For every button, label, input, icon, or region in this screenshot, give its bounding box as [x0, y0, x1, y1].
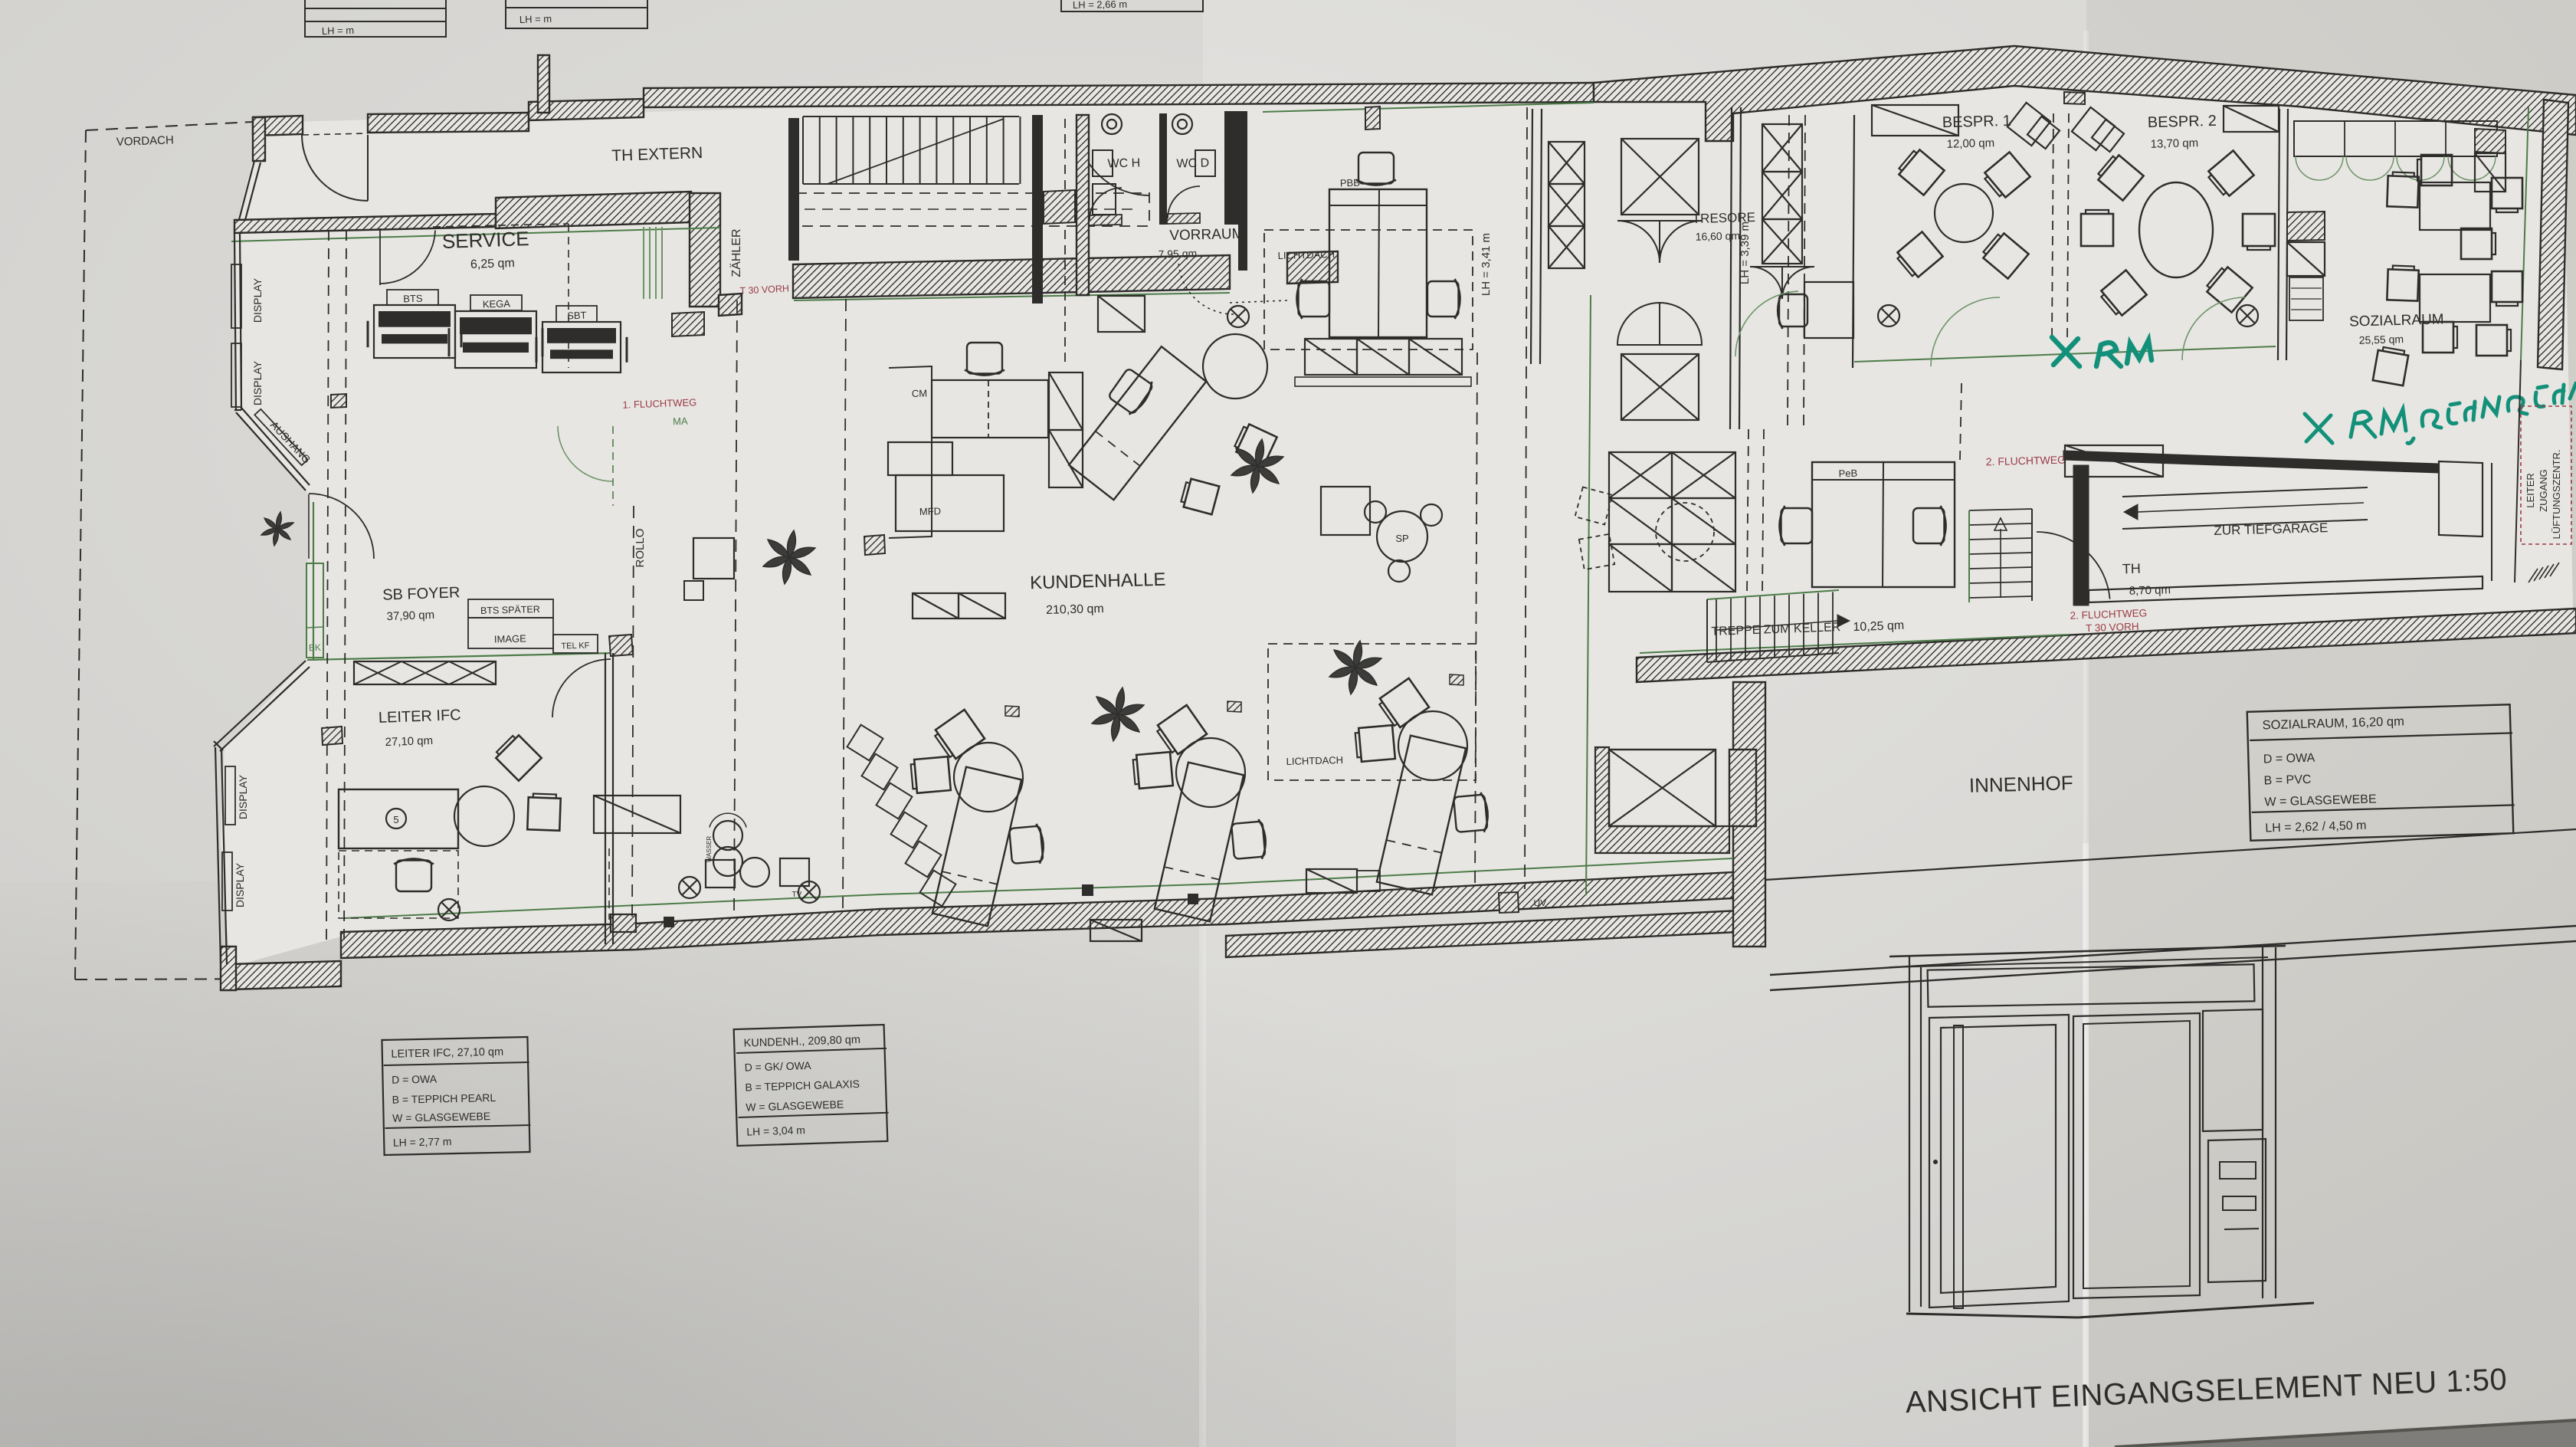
svg-text:SERVICE: SERVICE	[441, 227, 529, 253]
svg-text:7,95 qm: 7,95 qm	[1158, 247, 1197, 260]
svg-text:B = PVC: B = PVC	[2263, 773, 2311, 788]
svg-text:WC D: WC D	[1176, 156, 1209, 170]
svg-text:LH = 3,04 m: LH = 3,04 m	[746, 1124, 805, 1137]
svg-text:DISPLAY: DISPLAY	[237, 774, 249, 819]
svg-text:W = GLASGEWEBE: W = GLASGEWEBE	[392, 1110, 490, 1124]
svg-text:WASSER: WASSER	[706, 836, 713, 863]
svg-text:SB FOYER: SB FOYER	[382, 584, 460, 604]
svg-text:TH EXTERN: TH EXTERN	[611, 144, 703, 165]
svg-text:LEITER: LEITER	[2525, 473, 2536, 508]
svg-text:2. FLUCHTWEG: 2. FLUCHTWEG	[1986, 454, 2066, 468]
svg-text:5: 5	[393, 814, 398, 825]
svg-text:LICHTDACH: LICHTDACH	[1277, 248, 1335, 261]
svg-text:MA: MA	[673, 415, 688, 428]
svg-text:IMAGE: IMAGE	[494, 632, 527, 645]
svg-text:LH = 3,39 m: LH = 3,39 m	[1739, 221, 1752, 284]
svg-text:LÜFTUNGSZENTR.: LÜFTUNGSZENTR.	[2551, 450, 2562, 540]
svg-text:ZUGANG: ZUGANG	[2538, 469, 2549, 512]
svg-text:KUNDENHALLE: KUNDENHALLE	[1030, 569, 1166, 594]
svg-text:BTS: BTS	[403, 293, 423, 305]
svg-text:SBT: SBT	[567, 310, 587, 322]
svg-text:UV: UV	[1533, 897, 1546, 908]
svg-text:PeB: PeB	[1838, 468, 1857, 480]
svg-text:DISPLAY: DISPLAY	[251, 277, 264, 323]
svg-text:DISPLAY: DISPLAY	[234, 862, 246, 907]
svg-text:TV: TV	[791, 891, 801, 899]
svg-text:CM: CM	[912, 387, 928, 399]
svg-text:37,90 qm: 37,90 qm	[386, 609, 434, 623]
svg-text:B = TEPPICH PEARL: B = TEPPICH PEARL	[392, 1091, 497, 1106]
svg-text:25,55 qm: 25,55 qm	[2358, 333, 2404, 346]
svg-text:T 30 VORH: T 30 VORH	[2086, 621, 2139, 634]
svg-text:KEGA: KEGA	[483, 298, 511, 310]
svg-text:PBB: PBB	[1340, 177, 1360, 189]
svg-text:LICHTDACH: LICHTDACH	[1286, 754, 1343, 767]
svg-text:ZÄHLER: ZÄHLER	[729, 228, 743, 277]
svg-text:MFD: MFD	[919, 505, 942, 517]
svg-text:16,60 qm: 16,60 qm	[1695, 229, 1740, 243]
svg-text:VORRAUM: VORRAUM	[1169, 226, 1244, 244]
svg-text:LH = 2,77 m: LH = 2,77 m	[393, 1135, 452, 1149]
svg-text:LH = m: LH = m	[519, 13, 552, 25]
svg-text:BK: BK	[309, 642, 321, 653]
svg-text:D = GK/ OWA: D = GK/ OWA	[744, 1059, 811, 1074]
svg-text:INNENHOF: INNENHOF	[1969, 771, 2074, 797]
svg-text:WC H: WC H	[1107, 156, 1140, 170]
svg-text:6,25 qm: 6,25 qm	[470, 257, 515, 271]
svg-text:VORDACH: VORDACH	[116, 133, 175, 149]
svg-text:LEITER IFC: LEITER IFC	[379, 707, 461, 727]
svg-text:SP: SP	[1395, 533, 1408, 544]
svg-text:12,00 qm: 12,00 qm	[1946, 136, 1994, 151]
svg-text:13,70 qm: 13,70 qm	[2150, 136, 2198, 151]
svg-text:ZUR TIEFGARAGE: ZUR TIEFGARAGE	[2214, 520, 2328, 538]
svg-text:LH = 2,66 m: LH = 2,66 m	[1073, 0, 1127, 11]
svg-text:LEITER IFC, 27,10 qm: LEITER IFC, 27,10 qm	[391, 1046, 503, 1061]
svg-text:TH: TH	[2122, 561, 2142, 577]
svg-text:LH = m: LH = m	[322, 25, 355, 37]
svg-text:ROLLO: ROLLO	[634, 529, 647, 568]
svg-text:BESPR. 2: BESPR. 2	[2148, 113, 2217, 131]
svg-text:8,70 qm: 8,70 qm	[2129, 583, 2171, 597]
svg-text:TEL KF: TEL KF	[561, 641, 589, 651]
svg-text:BTS SPÄTER: BTS SPÄTER	[480, 604, 540, 616]
svg-text:210,30 qm: 210,30 qm	[1046, 602, 1104, 617]
svg-text:10,25 qm: 10,25 qm	[1853, 619, 1904, 634]
svg-text:D = OWA: D = OWA	[2263, 752, 2315, 766]
svg-text:27,10 qm: 27,10 qm	[385, 734, 433, 749]
svg-text:D = OWA: D = OWA	[392, 1073, 438, 1086]
svg-text:LH = 3,41 m: LH = 3,41 m	[1480, 233, 1493, 296]
svg-text:SOZIALRAUM: SOZIALRAUM	[2349, 311, 2444, 330]
svg-text:DISPLAY: DISPLAY	[251, 360, 264, 405]
svg-text:BESPR. 1: BESPR. 1	[1942, 113, 2012, 131]
